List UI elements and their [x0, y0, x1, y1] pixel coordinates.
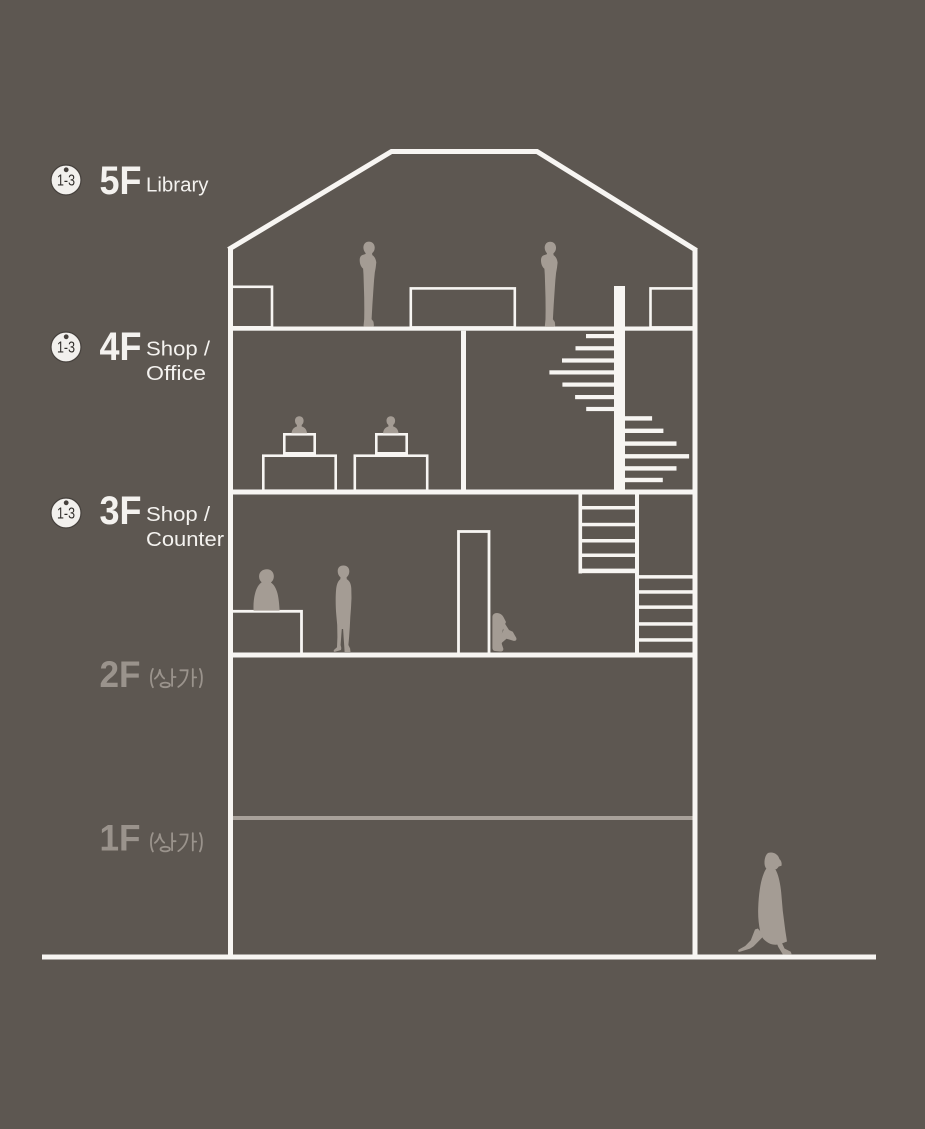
svg-text:Shop /: Shop /	[146, 338, 210, 361]
svg-text:4F: 4F	[100, 325, 142, 369]
svg-text:3F: 3F	[100, 489, 142, 533]
svg-text:1-3: 1-3	[57, 339, 75, 356]
svg-text:Office: Office	[146, 362, 206, 385]
svg-text:5F: 5F	[100, 159, 142, 203]
svg-text:1F: 1F	[100, 817, 141, 859]
svg-text:Library: Library	[146, 174, 209, 197]
svg-text:2F: 2F	[100, 653, 141, 695]
svg-text:1-3: 1-3	[57, 172, 75, 189]
svg-text:Counter: Counter	[146, 528, 224, 551]
svg-text:Shop /: Shop /	[146, 503, 210, 526]
svg-text:1-3: 1-3	[57, 505, 75, 522]
